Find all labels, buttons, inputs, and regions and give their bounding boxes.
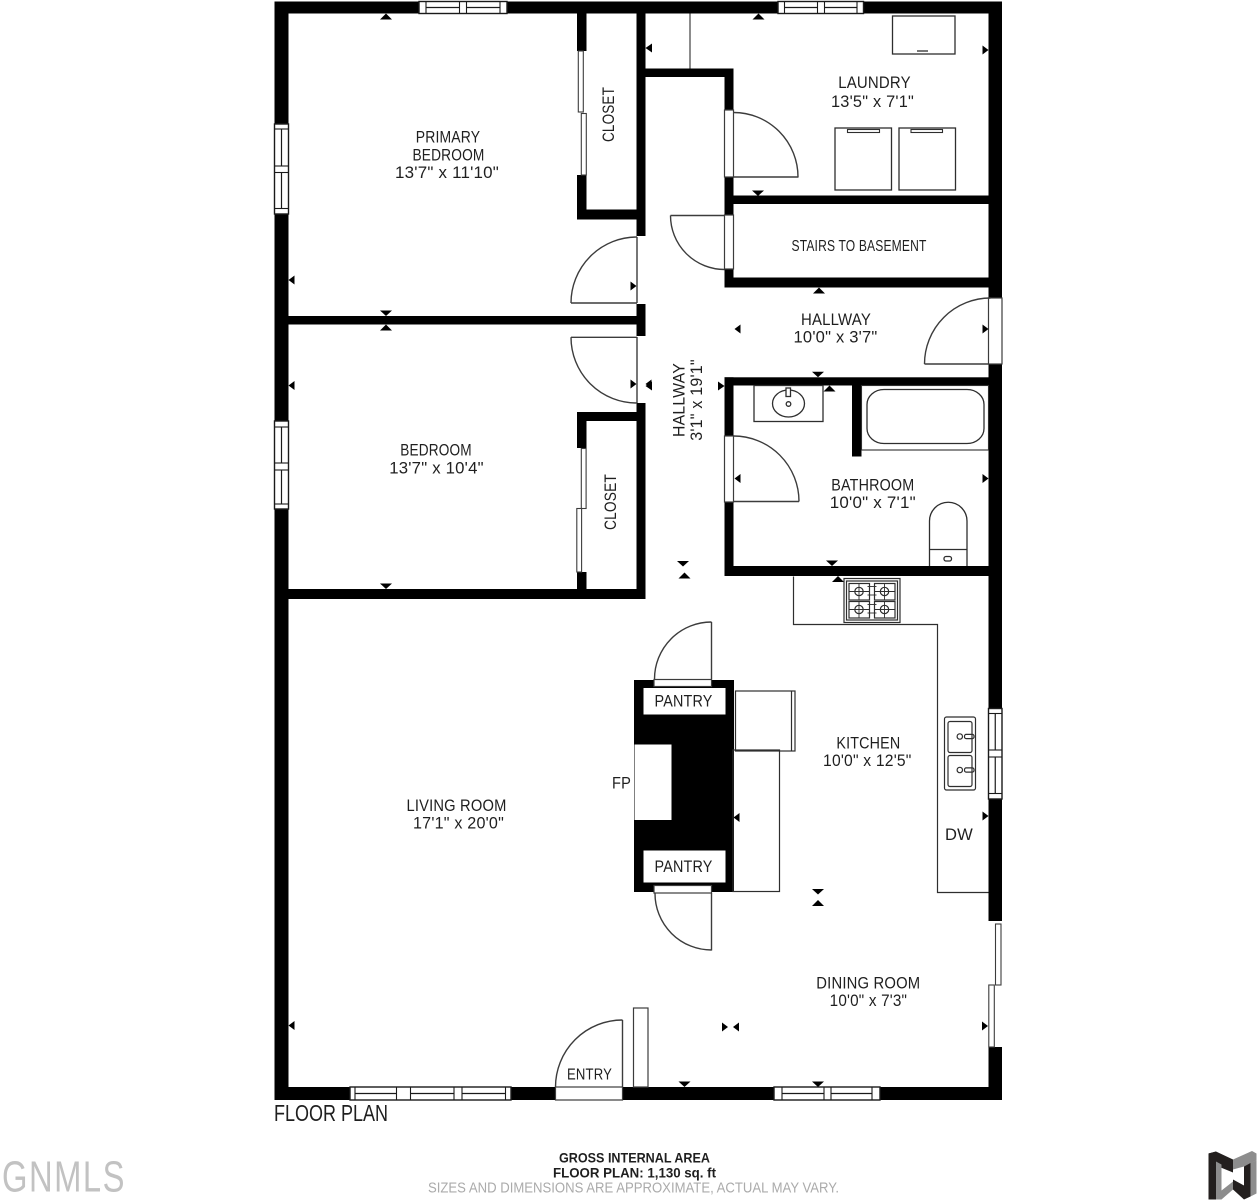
svg-text:13'7" x 11'10": 13'7" x 11'10" xyxy=(395,164,499,182)
svg-text:PANTRY: PANTRY xyxy=(655,693,713,711)
svg-text:LIVING ROOM: LIVING ROOM xyxy=(407,797,507,815)
svg-text:CLOSET: CLOSET xyxy=(602,474,620,530)
svg-text:SIZES AND DIMENSIONS ARE APPRO: SIZES AND DIMENSIONS ARE APPROXIMATE, AC… xyxy=(428,1181,839,1197)
svg-text:FLOOR PLAN: 1,130 sq. ft: FLOOR PLAN: 1,130 sq. ft xyxy=(553,1165,716,1181)
svg-text:13'7" x 10'4": 13'7" x 10'4" xyxy=(389,460,484,478)
svg-text:13'5" x 7'1": 13'5" x 7'1" xyxy=(831,93,914,111)
svg-text:LAUNDRY: LAUNDRY xyxy=(838,74,911,92)
svg-text:DW: DW xyxy=(945,826,973,844)
svg-text:CLOSET: CLOSET xyxy=(600,87,618,142)
svg-text:10'0" x 7'1": 10'0" x 7'1" xyxy=(830,494,916,512)
svg-text:DINING ROOM: DINING ROOM xyxy=(816,975,920,993)
svg-text:17'1" x 20'0": 17'1" x 20'0" xyxy=(413,815,504,833)
svg-text:KITCHEN: KITCHEN xyxy=(836,735,900,753)
svg-text:PRIMARY: PRIMARY xyxy=(416,129,481,147)
svg-text:HALLWAY: HALLWAY xyxy=(801,311,871,329)
svg-text:3'1" x 19'1": 3'1" x 19'1" xyxy=(688,359,706,441)
svg-text:BATHROOM: BATHROOM xyxy=(831,477,914,495)
svg-text:GROSS INTERNAL AREA: GROSS INTERNAL AREA xyxy=(559,1150,710,1166)
svg-text:PANTRY: PANTRY xyxy=(655,858,713,876)
svg-text:BEDROOM: BEDROOM xyxy=(400,442,472,460)
svg-text:HALLWAY: HALLWAY xyxy=(671,363,689,437)
svg-text:ENTRY: ENTRY xyxy=(567,1067,612,1084)
svg-text:FP: FP xyxy=(612,775,631,793)
svg-text:STAIRS TO BASEMENT: STAIRS TO BASEMENT xyxy=(792,238,927,255)
svg-text:GNMLS: GNMLS xyxy=(2,1153,126,1200)
svg-text:BEDROOM: BEDROOM xyxy=(413,147,485,165)
svg-text:10'0" x 12'5": 10'0" x 12'5" xyxy=(823,752,912,770)
svg-text:10'0" x 7'3": 10'0" x 7'3" xyxy=(830,992,908,1010)
svg-text:10'0" x 3'7": 10'0" x 3'7" xyxy=(794,329,878,347)
svg-text:FLOOR PLAN: FLOOR PLAN xyxy=(274,1100,388,1126)
